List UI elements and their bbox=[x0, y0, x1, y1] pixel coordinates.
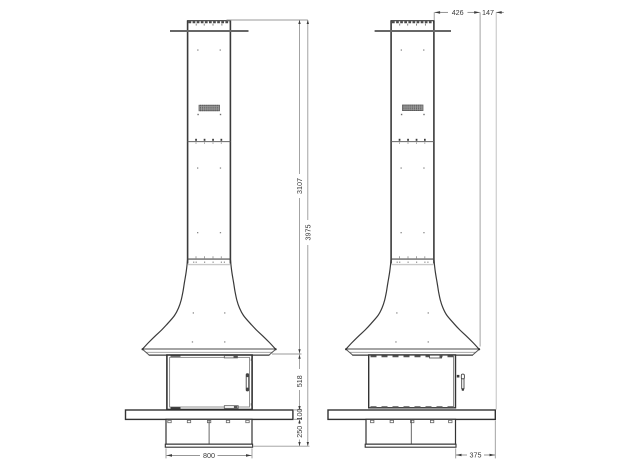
svg-text:3975: 3975 bbox=[303, 225, 312, 241]
svg-text:518: 518 bbox=[295, 375, 304, 387]
svg-text:147: 147 bbox=[482, 8, 494, 17]
svg-text:3107: 3107 bbox=[295, 178, 304, 194]
svg-text:250: 250 bbox=[295, 426, 304, 438]
svg-text:100: 100 bbox=[295, 409, 304, 421]
svg-text:426: 426 bbox=[452, 8, 464, 17]
svg-text:375: 375 bbox=[470, 451, 482, 460]
svg-text:800: 800 bbox=[203, 451, 215, 460]
